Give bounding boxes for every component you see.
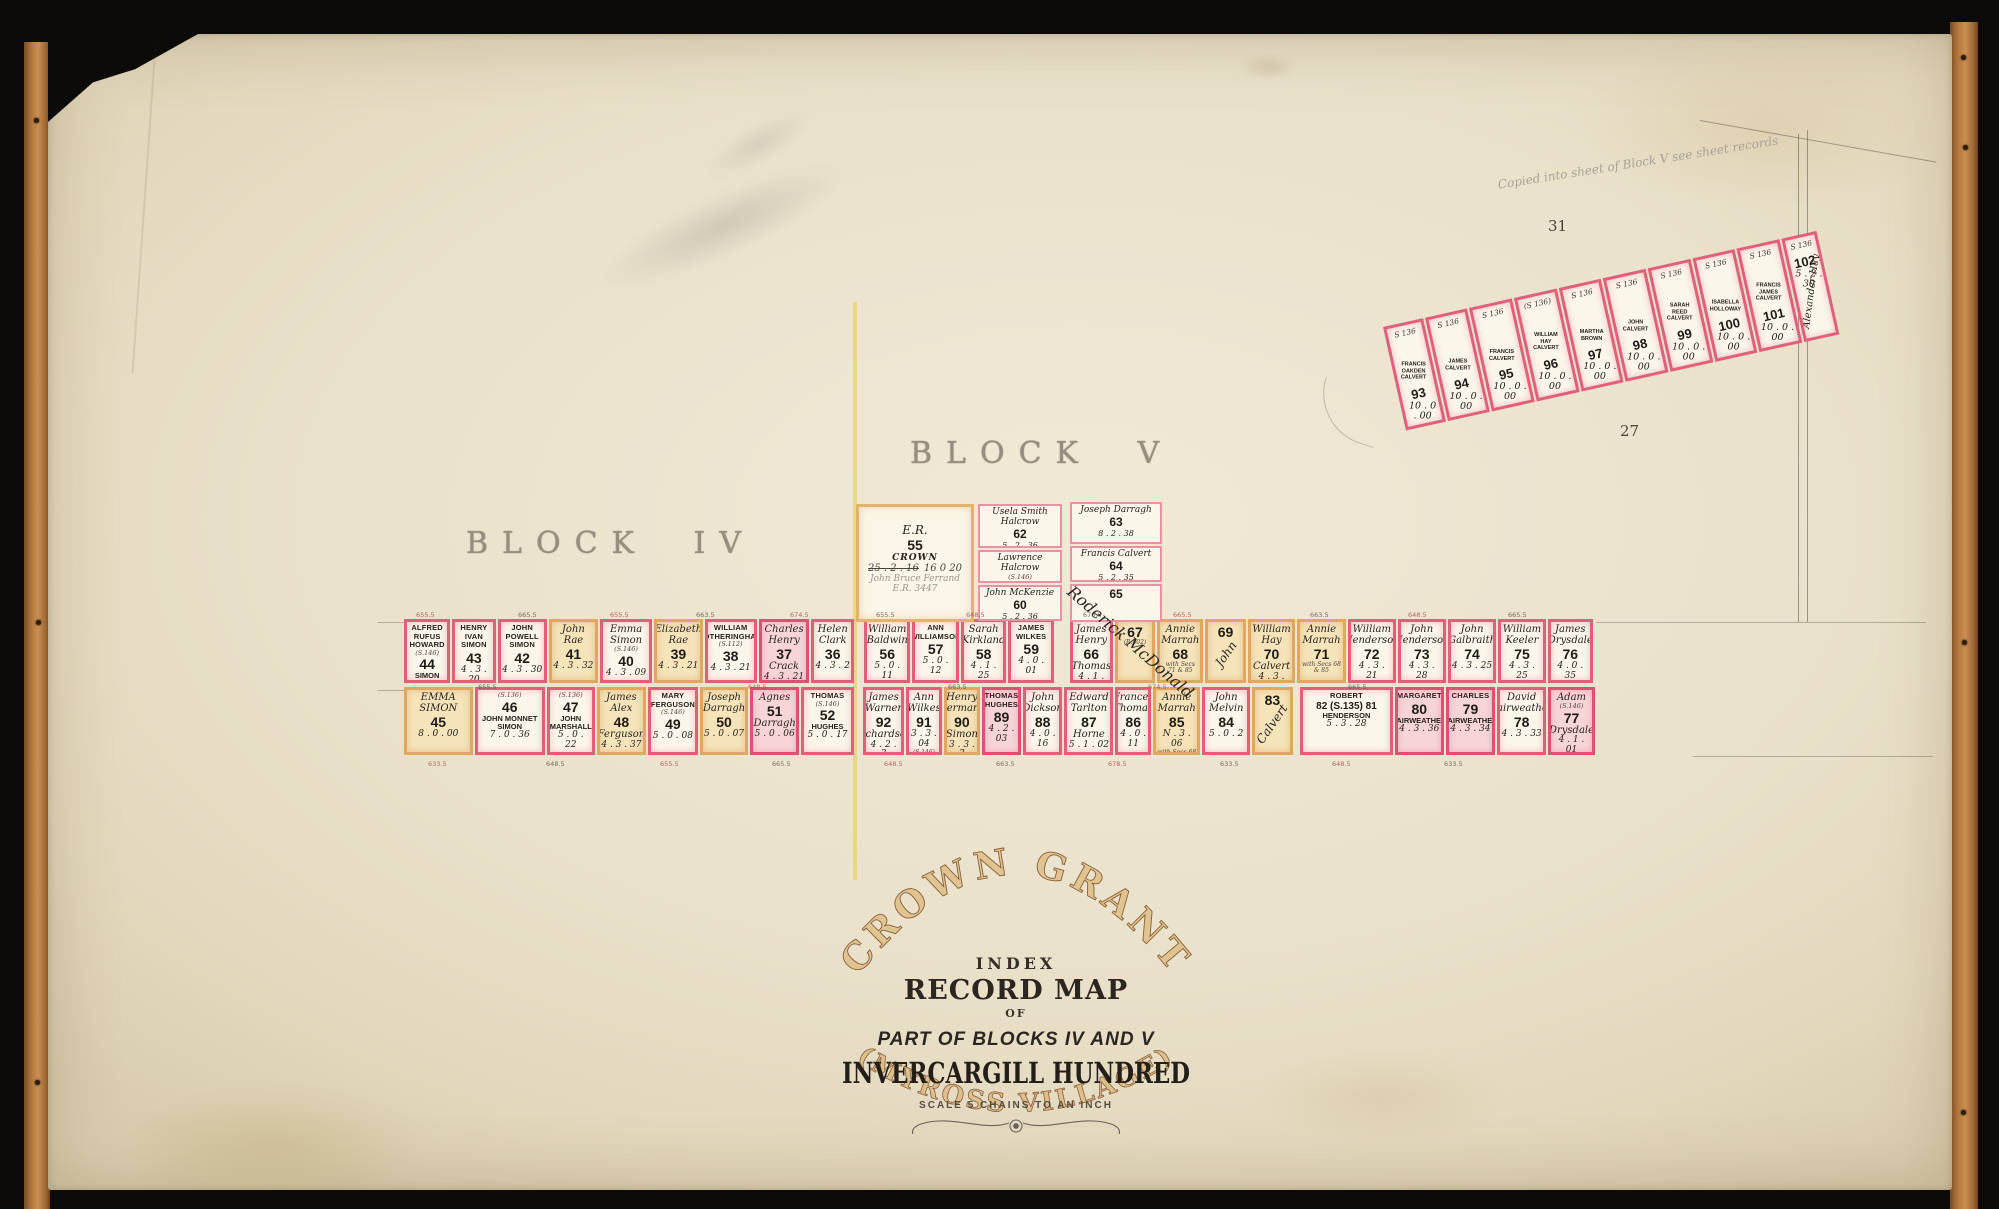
lot-number: 48 — [614, 714, 630, 730]
block-iv-label: BLOCK IV — [466, 526, 755, 561]
lot-number: 76 — [1562, 646, 1578, 662]
lot-number: 46 — [502, 699, 518, 715]
lot-number: 45 — [430, 714, 446, 730]
lot-number: 87 — [1081, 714, 1097, 730]
lot-area: 4 . 0 . 16 — [1027, 730, 1059, 750]
lot-area: 10 . 0 . 00 — [1582, 362, 1618, 383]
lot-owner-name: ALFRED RUFUS HOWARD — [408, 624, 446, 650]
lot-owner-diagonal: John — [1212, 639, 1239, 670]
lot-74: John Galbraith744 . 3 . 25 — [1448, 619, 1497, 683]
row1-block-v-lots-a: William Baldwin565 . 0 . 11ANN WILLIAMSO… — [864, 619, 1054, 683]
chain-measurement: 655.5 — [416, 611, 435, 619]
lot-owner-name: Ann Wilkes — [907, 692, 941, 714]
lot-area: 5 . 0 . 11 — [868, 662, 906, 682]
lot-area: 8 . 2 . 38 — [1098, 530, 1134, 539]
lot-number: 43 — [466, 650, 482, 666]
lot-area: 4 . 3 . 32 — [553, 662, 593, 672]
lot-69: 69John — [1205, 619, 1246, 683]
lot-owner-name: JOHN POWELL SIMON — [502, 624, 543, 650]
lot-number: 36 — [825, 646, 841, 662]
lot-section-ref: S 136 — [1437, 317, 1460, 331]
lot-83: 83Calvert — [1252, 687, 1293, 755]
lot-number: 80 — [1412, 701, 1428, 717]
chain-measurement: 633.5 — [428, 760, 447, 768]
page-crease — [131, 44, 156, 373]
lot-area: 5 . 2 . 36 — [1002, 542, 1038, 548]
lot-area: 10 . 0 . 00 — [1448, 392, 1484, 413]
boundary-line — [1596, 622, 1926, 623]
lot-area: 4 . 2 . 3 — [867, 741, 900, 755]
lot-number: 42 — [514, 650, 530, 666]
lot-89: THOMAS HUGHES894 . 2 . 03 — [982, 687, 1021, 755]
chain-measurement: 663.5 — [948, 683, 967, 691]
lot-area: 4 . 0 . 01 — [1012, 657, 1050, 677]
lot-41: John Rae414 . 3 . 32 — [549, 619, 598, 683]
lot-area: 4 . 3 . 21 — [711, 664, 751, 674]
lot-62: Usela Smith Halcrow625 . 2 . 36 — [978, 504, 1062, 548]
chain-measurement: 648.5 — [748, 683, 767, 691]
screw — [35, 1080, 40, 1085]
lot-owner-name: William Henderson — [1348, 624, 1396, 646]
title-invercargill-hundred: INVERCARGILL HUNDRED — [842, 1056, 1190, 1090]
crown-label: CROWN — [892, 553, 938, 563]
lot-owner-name: ISABELLA HOLLOWAY — [1707, 299, 1743, 312]
torn-corner — [48, 34, 198, 122]
lot-number: 77 — [1564, 710, 1580, 726]
title-record-map: RECORD MAP — [904, 975, 1128, 1006]
lot-number: 74 — [1464, 646, 1480, 662]
row2-block-v-lots-b: ROBERT82 (S.135) 81HENDERSON5 . 3 . 28MA… — [1300, 687, 1595, 755]
lot-area: 4 . 3 . 33 — [1502, 730, 1542, 740]
lot-82-S-135-81: ROBERT82 (S.135) 81HENDERSON5 . 3 . 28 — [1300, 687, 1393, 755]
lot-49: MARY FERGUSON(S.146)495 . 0 . 08 — [648, 687, 698, 755]
lot-owner-name: FRANCIS CALVERT — [1484, 349, 1520, 362]
lot-area: 5 . 0 . 12 — [916, 657, 954, 677]
title-flourish — [912, 1120, 1119, 1134]
wood-bar-left — [24, 42, 50, 1209]
lot-area: 3 . 3 . 3 — [948, 741, 976, 755]
lot-owner-name: Frances Thomas — [1115, 692, 1151, 714]
lot-section-ref: (S 136) — [1523, 296, 1552, 311]
lot-owner-name: CHARLES — [1452, 692, 1490, 701]
road-line — [1807, 130, 1808, 622]
lot-owner-name: ANN WILLIAMSON — [912, 624, 958, 641]
lot-56: William Baldwin565 . 0 . 11 — [864, 619, 910, 683]
lot-note: with Secs 68 & 71 Block V — [1157, 750, 1196, 755]
lot-number: 92 — [876, 714, 892, 730]
screw — [1961, 1110, 1966, 1115]
road-line — [1798, 134, 1799, 622]
lot-area: 7 . 0 . 36 — [490, 731, 530, 741]
lot-owner-name: JAMES WILKES — [1012, 624, 1050, 641]
lot-area: 4 . 3 . 30 — [502, 666, 542, 676]
lot-number: 70 — [1264, 646, 1280, 662]
lot-area: 3 . 3 . 04 — [910, 730, 938, 750]
lot-section-ref: S 136 — [1660, 267, 1683, 281]
row2-block-iv-lots: EMMA SIMON458 . 0 . 00(S.136)46JOHN MONN… — [404, 687, 854, 755]
chain-measurement: 655.5 — [660, 760, 679, 768]
lot-79: CHARLES79FAIRWEATHER4 . 3 . 34 — [1446, 687, 1496, 755]
title-scale: SCALE 5 CHAINS TO AN INCH — [919, 1100, 1113, 1111]
lot-area: 10 . 0 . 00 — [1492, 382, 1528, 403]
screw — [34, 118, 39, 123]
lot-area: 5 . 1 . 02 — [1069, 741, 1109, 751]
lot-area: 10 . 0 . 00 — [1406, 402, 1439, 423]
lot-number: 64 — [1109, 560, 1122, 574]
lot-area: 5 . 2 . 36 — [1002, 613, 1038, 621]
lot-area: 4 . 3 . 25 — [1502, 662, 1541, 682]
lot-number: 51 — [767, 703, 783, 719]
chain-measurement: 655.5 — [876, 611, 895, 619]
lot-area: 10 . 0 . 00 — [1760, 323, 1796, 344]
er-label: E.R. — [902, 523, 927, 537]
lot-number: 37 — [776, 646, 792, 662]
chain-measurement: 665.5 — [518, 611, 537, 619]
lot-owner-name: John Dickson — [1023, 692, 1063, 714]
lot-86: Frances Thomas864 . 0 . 11 — [1115, 687, 1151, 755]
lot-owner-diagonal: Calvert — [1254, 702, 1291, 747]
lot-number: 44 — [419, 656, 435, 672]
screw — [1961, 55, 1966, 60]
lot-number: 49 — [665, 716, 681, 732]
lot-48: James Alex48Ferguson4 . 3 . 37 — [597, 687, 647, 755]
lot-area: 4 . 3 . 21 — [1352, 662, 1392, 682]
lot-area: 4 . 0 . 35 — [1552, 662, 1589, 682]
lot-owner-name: MARTHA BROWN — [1573, 329, 1609, 342]
lot-50: Joseph Darragh505 . 0 . 07 — [700, 687, 749, 755]
chain-measurement: 648.5 — [884, 760, 903, 768]
chain-measurement: 633.5 — [1220, 760, 1239, 768]
lot-number: 75 — [1514, 646, 1530, 662]
lot-owner-name: EMMA SIMON — [408, 692, 469, 714]
screw — [1963, 145, 1968, 150]
lot-note: with Secs 68 & 85 — [1301, 662, 1342, 675]
boundary-curve — [1309, 377, 1389, 448]
lot-area: 5 . 0 . 17 — [807, 731, 847, 741]
lot-owner-name: Usela Smith Halcrow — [981, 508, 1059, 528]
chain-measurement: 674.5 — [790, 611, 809, 619]
lot-owner-name-2: JOHN MARSHALL — [550, 715, 592, 732]
lot-87: Edward Tarlton87Horne5 . 1 . 02 — [1064, 687, 1113, 755]
lot-57: ANN WILLIAMSON575 . 0 . 12 — [912, 619, 958, 683]
lot-77: Adam(S.146)77Drysdale4 . 1 . 01 — [1548, 687, 1595, 755]
pencil-er-number: E.R. 3447 — [893, 584, 938, 594]
lot-number: 38 — [723, 648, 739, 664]
chain-measurement: 633.5 — [1444, 760, 1463, 768]
chain-measurement: 678.5 — [1108, 760, 1127, 768]
lot-owner-name: John Galbraith — [1448, 624, 1496, 646]
lot-owner-name: Agnes — [759, 692, 790, 703]
lot-area: 4 . 3 . 37 — [601, 741, 641, 751]
lot-area: 4 . 3 . 21 — [658, 662, 698, 672]
lot-owner-name: Lawrence Halcrow — [981, 554, 1059, 574]
lot-area: 4 . 3 . 20 — [456, 666, 491, 683]
pencil-annotation: Copied into sheet of Block V see sheet r… — [1497, 126, 1825, 191]
lot-92: James Warner92Richardson4 . 2 . 3 — [863, 687, 904, 755]
lot-owner-name: FRANCIS OAKDEN CALVERT — [1397, 362, 1430, 382]
title-part-of-blocks: PART OF BLOCKS IV AND V — [877, 1029, 1154, 1050]
section-31-strip-lots: S 136FRANCIS OAKDEN CALVERT9310 . 0 . 00… — [1383, 231, 1839, 431]
lot-number: 55 — [907, 537, 923, 553]
chain-measurement: 648.5 — [1332, 760, 1351, 768]
lot-44: ALFRED RUFUS HOWARD(S.146)44SIMON4 . 3 .… — [404, 619, 450, 683]
lot-63: Joseph Darragh638 . 2 . 38 — [1070, 502, 1162, 544]
lot-area: 4 . 1 . 25 — [965, 662, 1003, 682]
lot-area: 4 . 3 . 09 — [606, 669, 646, 679]
lot-88: John Dickson884 . 0 . 16 — [1023, 687, 1063, 755]
lot-number: 47 — [563, 699, 579, 715]
section-27-label: 27 — [1620, 422, 1639, 440]
lot-owner-name: Helen Clark — [815, 624, 850, 646]
lot-owner-name: Emma Simon — [604, 624, 648, 646]
lot-52: THOMAS(S.146)52HUGHES5 . 0 . 17 — [801, 687, 854, 755]
lot-owner-name: Henry Hermann — [944, 692, 980, 714]
lot-area: 10 . 0 . 00 — [1671, 343, 1707, 364]
stain — [1238, 54, 1298, 80]
lot-90: Henry Hermann90Simon3 . 3 . 3 — [944, 687, 980, 755]
lot-46: (S.136)46JOHN MONNET SIMON7 . 0 . 36 — [475, 687, 545, 755]
lot-area: 5 . 3 . 28 — [1326, 720, 1366, 730]
lot-number: 59 — [1023, 641, 1039, 657]
lot-owner-name: Annie Marrah — [1161, 624, 1199, 646]
lot-number: 90 — [954, 714, 970, 730]
lot-owner-name: William Keeler — [1502, 624, 1541, 646]
lot-number: 57 — [928, 641, 944, 657]
lot-owner-name: James Alex — [601, 692, 643, 714]
lot-55-crown: E.R.55CROWN25 . 2 . 1616 0 20John Bruce … — [856, 504, 974, 622]
lot-section-ref: S 136 — [1481, 307, 1504, 321]
lot-73: John Henderson734 . 3 . 28 — [1398, 619, 1446, 683]
chain-measurement: 674.5 — [1148, 683, 1167, 691]
lot-number: 85 — [1169, 714, 1185, 730]
lot-area: 10 . 0 . 00 — [1626, 352, 1662, 373]
lot-note: (S.146) — [913, 750, 935, 755]
row1-block-iv-lots: ALFRED RUFUS HOWARD(S.146)44SIMON4 . 3 .… — [404, 619, 854, 683]
area-revision: 25 . 2 . 1616 0 20 — [868, 563, 962, 574]
chain-measurement: 665.5 — [1173, 611, 1192, 619]
lot-number: 41 — [566, 646, 582, 662]
lot-owner-name: Edward Tarlton — [1068, 692, 1109, 714]
lot-area: 4 . 3 . 2 — [816, 662, 850, 672]
chain-measurement: 655.5 — [478, 683, 497, 691]
lot-area: 8 . 0 . 00 — [418, 730, 458, 740]
lot-owner-name: John Henderson — [1398, 624, 1446, 646]
lot-91: Ann Wilkes913 . 3 . 04(S.146) — [906, 687, 942, 755]
chain-measurement: 663.5 — [696, 611, 715, 619]
lot-area: 5 . 0 . 06 — [755, 730, 795, 740]
lot-number: 40 — [618, 653, 634, 669]
chain-measurement: 665.5 — [772, 760, 791, 768]
lot-39: Elizabeth Rae394 . 3 . 21 — [654, 619, 702, 683]
lot-area: 4 . 2 . 03 — [986, 725, 1017, 745]
lot-number: 86 — [1125, 714, 1141, 730]
lot-76: James Drysdale764 . 0 . 35 — [1548, 619, 1593, 683]
screw — [1962, 640, 1967, 645]
lot-owner-name: James Drysdale — [1548, 624, 1593, 646]
lot-owner-name: ROBERT — [1330, 692, 1363, 701]
lot-owner-name: WILLIAM FOTHERINGHAM — [705, 624, 757, 641]
lot-owner-name: James Warner — [865, 692, 902, 714]
chain-measurement: 648.5 — [1408, 611, 1427, 619]
lot-area: 5 . 0 . 22 — [551, 731, 591, 751]
lot-owner-name: HENRY IVAN SIMON — [456, 624, 491, 650]
lot-60: John McKenzie605 . 2 . 36 — [978, 585, 1062, 621]
lot-owner-name: Elizabeth Rae — [655, 624, 703, 646]
lot-70: William Hay70Calvert4 . 3 . 20 — [1248, 619, 1295, 683]
chain-measurement: 663.5 — [1310, 611, 1329, 619]
lot-51: Agnes51Darragh5 . 0 . 06 — [750, 687, 799, 755]
lot-number: 61 — [1013, 580, 1026, 583]
section-31-label: 31 — [1548, 217, 1567, 235]
lot-area: 4 . 3 . 25 — [1452, 662, 1492, 672]
lot-area: 10 . 0 . 00 — [1715, 333, 1751, 354]
lot-owner-name: SARAH REED CALVERT — [1662, 303, 1698, 323]
lot-area: 5 . 2 . 35 — [1098, 574, 1134, 582]
boundary-line — [378, 690, 404, 691]
lot-number: 79 — [1463, 701, 1479, 717]
chain-measurement: 655.5 — [610, 611, 629, 619]
lot-number: 62 — [1013, 528, 1026, 542]
lot-number: 72 — [1364, 646, 1380, 662]
lot-owner-name: William Hay — [1252, 624, 1291, 646]
lot-area: 4 . 3 . 34 — [1450, 725, 1490, 735]
lot-area: 5 . 0 . 07 — [704, 730, 744, 740]
lot-59: JAMES WILKES594 . 0 . 01 — [1008, 619, 1054, 683]
lot-number: 88 — [1035, 714, 1051, 730]
lot-75: William Keeler754 . 3 . 25(S.146) — [1498, 619, 1545, 683]
lot-number: 71 — [1314, 646, 1330, 662]
lot-area: 4 . 3 . 20 — [1252, 673, 1291, 683]
lot-area: 4 . 3 . 36 — [1399, 725, 1439, 735]
lot-43: HENRY IVAN SIMON434 . 3 . 20 — [452, 619, 495, 683]
lot-owner-name: Sarah Kirkland — [962, 624, 1006, 646]
screw — [36, 620, 41, 625]
title-index: INDEX — [976, 954, 1057, 973]
row2-block-v-lots-a: James Warner92Richardson4 . 2 . 3Ann Wil… — [863, 687, 1293, 755]
lot-40: Emma Simon(S.146)404 . 3 . 09 — [600, 619, 652, 683]
map-sheet: BLOCK IV BLOCK V Copied into sheet of Bl… — [48, 34, 1952, 1190]
chain-measurement: 648.5 — [546, 760, 565, 768]
scanned-map-photo: { "labels": { "block_iv": "BLOCK IV", "b… — [0, 0, 1999, 1209]
lot-owner-name: Charles Henry — [763, 624, 806, 646]
lot-owner-name: MARY FERGUSON — [651, 692, 695, 709]
lot-owner-name-2: JOHN MONNET SIMON — [479, 715, 541, 732]
lot-section-ref: S 136 — [1615, 277, 1638, 291]
lot-area: 4 . 1 . 25 — [1074, 673, 1109, 683]
lot-owner-name: Joseph Darragh — [703, 692, 745, 714]
lot-area: 10 . 0 . 00 — [1537, 372, 1573, 393]
lot-owner-name: MARGARET — [1397, 692, 1442, 701]
boundary-line — [1693, 756, 1933, 757]
lot-72: William Henderson724 . 3 . 21 — [1348, 619, 1396, 683]
title-of: OF — [1005, 1007, 1026, 1020]
lot-area: 5 . 0 . 08 — [653, 732, 693, 742]
lot-owner-name: John Rae — [553, 624, 594, 646]
lot-owner-name: FRANCIS JAMES CALVERT — [1751, 283, 1787, 303]
lot-owner-name: William Baldwin — [867, 624, 908, 646]
lot-number: 78 — [1514, 714, 1530, 730]
chain-measurement: 665.5 — [1508, 611, 1527, 619]
lot-number: 69 — [1218, 624, 1234, 640]
lot-71: Annie Marrah71with Secs 68 & 85 — [1297, 619, 1346, 683]
wood-bar-right — [1950, 22, 1978, 1209]
lot-number: 39 — [671, 646, 687, 662]
lot-37: Charles Henry37Crack4 . 3 . 21 — [759, 619, 810, 683]
lot-area: 4 . 1 . 01 — [1552, 736, 1591, 755]
lot-owner-name: JOHN CALVERT — [1618, 319, 1654, 332]
chain-measurement: 648.5 — [966, 611, 985, 619]
chain-measurement: 663.5 — [996, 760, 1015, 768]
lot-64: Francis Calvert645 . 2 . 35 — [1070, 546, 1162, 582]
lot-number: 91 — [916, 714, 932, 730]
lot-number: 73 — [1414, 646, 1430, 662]
pencil-owner-note: John Bruce Ferrand — [870, 574, 960, 584]
lot-78: David Fairweather784 . 3 . 33 — [1497, 687, 1546, 755]
lot-45: EMMA SIMON458 . 0 . 00 — [404, 687, 473, 755]
lot-owner-name: THOMAS HUGHES — [985, 692, 1019, 709]
lot-42: JOHN POWELL SIMON424 . 3 . 30 — [498, 619, 547, 683]
lot-80: MARGARET80FAIRWEATHER4 . 3 . 36 — [1395, 687, 1444, 755]
lot-area: 4 . 3 . 28 — [1402, 662, 1442, 682]
lot-section-ref: S 136 — [1570, 287, 1593, 301]
lot-owner-name: WILLIAM HAY CALVERT — [1528, 332, 1564, 352]
chain-measurement: 665.5 — [1348, 683, 1367, 691]
lot-number: 56 — [879, 646, 895, 662]
lot-area: 4 . 3 . 20 — [408, 681, 446, 683]
block-v-label: BLOCK V — [910, 436, 1173, 471]
lot-owner-name: JAMES CALVERT — [1440, 359, 1476, 372]
boundary-line — [378, 622, 404, 623]
lot-58: Sarah Kirkland584 . 1 . 25 — [961, 619, 1007, 683]
lot-number: 66 — [1083, 646, 1099, 662]
lot-section-ref: S 136 — [1790, 238, 1813, 252]
lot-section-ref: S 136 — [1704, 257, 1727, 271]
lot-number: 65 — [1109, 588, 1122, 602]
lot-area: 5 . 0 . 2 — [1209, 730, 1243, 740]
lot-owner-name: David Fairweather — [1497, 692, 1546, 714]
lot-section-ref: S 136 — [1393, 326, 1416, 340]
lot-area: N . 3 . 06 — [1157, 730, 1196, 750]
lot-number: 60 — [1013, 599, 1026, 613]
lot-number: 68 — [1172, 646, 1188, 662]
lot-38: WILLIAM FOTHERINGHAM(S.112)384 . 3 . 21 — [705, 619, 757, 683]
lot-61: Lawrence Halcrow(S.146)615 . 2 . 36 — [978, 550, 1062, 583]
title-cartouche: CROWN GRANT (MYROSS VILLAGE) INDEX RECOR… — [826, 827, 1206, 1172]
lot-number: 52 — [820, 707, 836, 723]
lot-number: 89 — [994, 709, 1010, 725]
lot-area: 4 . 3 . 21 — [764, 673, 804, 683]
chain-measurement: 676.5 — [1083, 611, 1102, 619]
lot-note: (S.146) — [1511, 682, 1533, 683]
lot-section-ref: S 136 — [1749, 247, 1772, 261]
lot-area: 4 . 0 . 11 — [1119, 730, 1147, 750]
lot-47: (S.136)47JOHN MARSHALL5 . 0 . 22 — [547, 687, 595, 755]
lot-number: 58 — [976, 646, 992, 662]
lot-number: 63 — [1109, 516, 1122, 530]
lot-owner-name: Annie Marrah — [1301, 624, 1342, 646]
lot-number: 50 — [716, 714, 732, 730]
row1-block-v-lots-c: William Hay70Calvert4 . 3 . 20Annie Marr… — [1248, 619, 1593, 683]
lot-36: Helen Clark364 . 3 . 2 — [811, 619, 854, 683]
